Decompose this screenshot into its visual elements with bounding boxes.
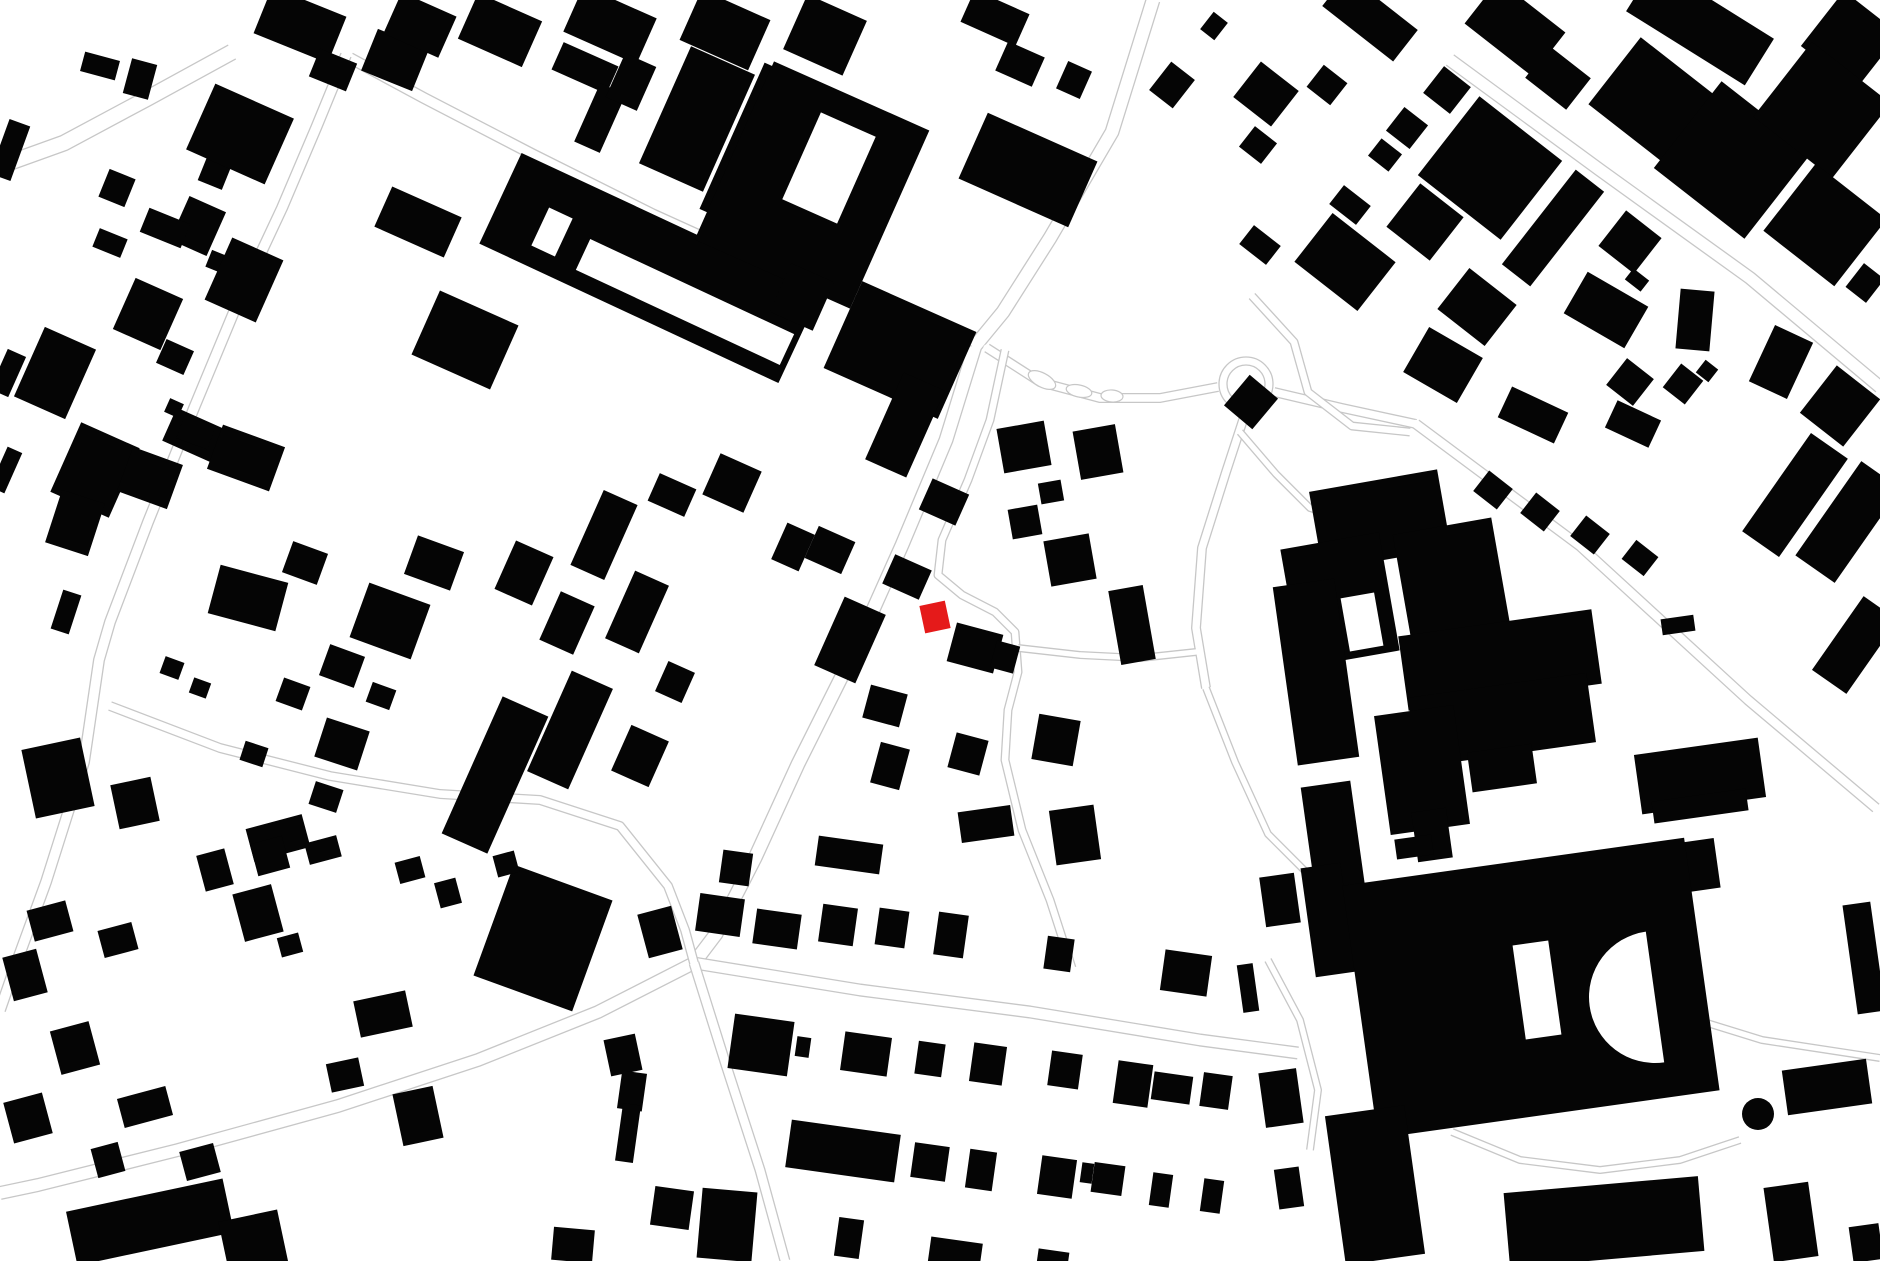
building-footprint	[551, 1227, 595, 1261]
building-footprint	[1307, 65, 1348, 106]
building-footprint	[1504, 1176, 1705, 1261]
building-footprint	[110, 777, 159, 830]
building-footprint	[1008, 505, 1043, 540]
building-footprint	[947, 732, 988, 775]
building-footprint	[785, 1120, 901, 1183]
building-footprint	[50, 1021, 100, 1075]
building-footprint	[319, 644, 365, 688]
building-footprint	[366, 682, 397, 710]
building-footprint	[783, 0, 867, 76]
building-footprint	[611, 725, 669, 787]
building-footprint	[1200, 1178, 1224, 1213]
building-footprint	[1149, 62, 1195, 109]
building-footprint	[1091, 1162, 1126, 1196]
traffic-island	[1025, 367, 1058, 393]
building-footprint	[434, 878, 462, 909]
buildings-layer	[0, 0, 1880, 1261]
building-footprint	[1274, 1166, 1304, 1209]
building-footprint	[697, 1188, 758, 1261]
site-plan-canvas	[0, 0, 1880, 1261]
building-footprint	[92, 228, 127, 258]
building-footprint	[1386, 107, 1428, 149]
building-footprint	[189, 677, 211, 698]
building-footprint	[1498, 386, 1569, 443]
building-footprint	[1598, 210, 1661, 273]
building-footprint	[771, 523, 815, 572]
building-footprint	[604, 1034, 643, 1077]
building-footprint	[655, 661, 695, 703]
building-footprint	[1237, 963, 1260, 1013]
building-footprint	[1322, 0, 1418, 61]
building-footprint	[1151, 1071, 1194, 1104]
building-footprint	[1037, 1155, 1077, 1198]
site-marker-layer	[919, 601, 950, 634]
building-footprint	[1605, 400, 1661, 447]
building-footprint	[1031, 714, 1080, 767]
building-footprint	[98, 169, 135, 207]
round-building	[1742, 1098, 1774, 1130]
building-footprint	[1849, 1223, 1880, 1261]
building-footprint	[795, 1036, 812, 1058]
building-footprint	[727, 1014, 794, 1077]
building-footprint	[208, 565, 289, 631]
building-footprint	[494, 540, 553, 605]
building-footprint	[1149, 1172, 1173, 1207]
building-footprint	[411, 291, 518, 390]
building-footprint	[995, 41, 1045, 87]
site-marker	[919, 601, 950, 634]
building-footprint	[3, 1093, 53, 1144]
building-footprint	[309, 781, 344, 813]
building-footprint	[605, 571, 669, 654]
building-footprint	[276, 677, 311, 710]
building-footprint	[1047, 1051, 1083, 1090]
building-footprint	[395, 856, 426, 884]
building-footprint	[0, 447, 22, 494]
building-footprint	[719, 850, 753, 887]
traffic-island	[1065, 382, 1093, 399]
building-footprint	[473, 865, 612, 1012]
building-footprint	[1764, 1182, 1819, 1261]
building-footprint	[969, 1042, 1007, 1085]
building-footprint	[570, 490, 637, 580]
building-footprint	[1233, 61, 1299, 126]
building-footprint	[314, 718, 369, 771]
building-footprint	[695, 893, 745, 937]
building-footprint	[1846, 263, 1880, 303]
building-footprint	[1259, 873, 1301, 927]
building-footprint	[965, 1149, 997, 1191]
building-footprint	[277, 932, 303, 957]
building-footprint	[960, 0, 1029, 46]
building-footprint	[1199, 1072, 1232, 1110]
road-edges	[110, 706, 694, 963]
building-footprint	[1037, 1248, 1070, 1261]
building-footprint	[442, 696, 549, 853]
building-footprint	[615, 1103, 641, 1163]
building-footprint	[1049, 805, 1101, 866]
building-footprint	[875, 908, 910, 949]
building-footprint	[1258, 1068, 1303, 1128]
building-footprint	[66, 1178, 234, 1261]
building-footprint	[113, 278, 183, 350]
building-footprint	[1038, 480, 1064, 505]
building-footprint	[1043, 936, 1074, 972]
building-footprint	[933, 912, 969, 959]
building-footprint	[14, 327, 96, 419]
building-footprint	[1239, 225, 1281, 265]
building-footprint	[1622, 540, 1659, 576]
building-footprint	[805, 526, 856, 574]
round-building-layer	[1742, 1098, 1774, 1130]
building-footprint	[1625, 268, 1649, 291]
building-footprint	[1403, 327, 1483, 403]
building-footprint	[80, 52, 120, 81]
building-footprint	[304, 835, 342, 865]
building-footprint	[1368, 138, 1402, 171]
building-footprint	[1043, 533, 1096, 586]
building-footprint	[1812, 596, 1880, 694]
building-footprint	[1056, 61, 1092, 99]
building-footprint	[840, 1031, 892, 1076]
building-footprint	[1080, 1162, 1095, 1183]
building-footprint	[404, 535, 464, 590]
building-footprint	[648, 473, 697, 517]
building-footprint	[1073, 424, 1124, 480]
building-footprint	[1663, 364, 1704, 405]
building-footprint	[374, 186, 461, 257]
building-footprint	[959, 113, 1098, 228]
building-footprint	[1749, 325, 1813, 399]
building-footprint	[1782, 1059, 1872, 1115]
building-footprint	[1606, 358, 1654, 406]
building-footprint	[914, 1041, 945, 1077]
building-footprint	[752, 909, 801, 950]
building-footprint	[1160, 949, 1212, 996]
building-footprint	[910, 1142, 950, 1182]
building-footprint	[160, 656, 185, 680]
building-footprint	[927, 1237, 983, 1261]
building-footprint	[97, 922, 138, 958]
building-footprint	[232, 884, 283, 942]
building-footprint	[862, 685, 908, 728]
building-footprint	[326, 1057, 364, 1092]
building-footprint	[650, 1186, 694, 1230]
building-footprint	[51, 590, 82, 635]
building-footprint	[1294, 213, 1395, 311]
building-footprint	[818, 904, 858, 947]
building-footprint	[205, 238, 284, 323]
building-footprint	[996, 421, 1051, 474]
building-footprint	[815, 836, 884, 875]
building-footprint	[539, 591, 594, 654]
building-footprint	[350, 583, 431, 660]
building-footprint	[1842, 902, 1880, 1015]
building-footprint	[1437, 268, 1516, 346]
building-footprint	[196, 848, 234, 891]
building-footprint	[282, 541, 328, 585]
building-footprint	[458, 0, 542, 67]
building-footprint	[117, 1086, 173, 1128]
figure-ground-map	[0, 0, 1880, 1261]
building-footprint	[353, 990, 413, 1037]
building-footprint	[834, 1217, 864, 1259]
building-footprint	[392, 1086, 443, 1146]
building-footprint	[870, 742, 910, 790]
building-footprint	[1239, 126, 1277, 164]
building-footprint	[958, 805, 1015, 843]
building-footprint	[1113, 1060, 1154, 1107]
road-surface	[987, 348, 1218, 398]
building-footprint	[702, 453, 761, 512]
building-footprint	[1200, 12, 1228, 40]
building-footprint	[1675, 289, 1714, 352]
